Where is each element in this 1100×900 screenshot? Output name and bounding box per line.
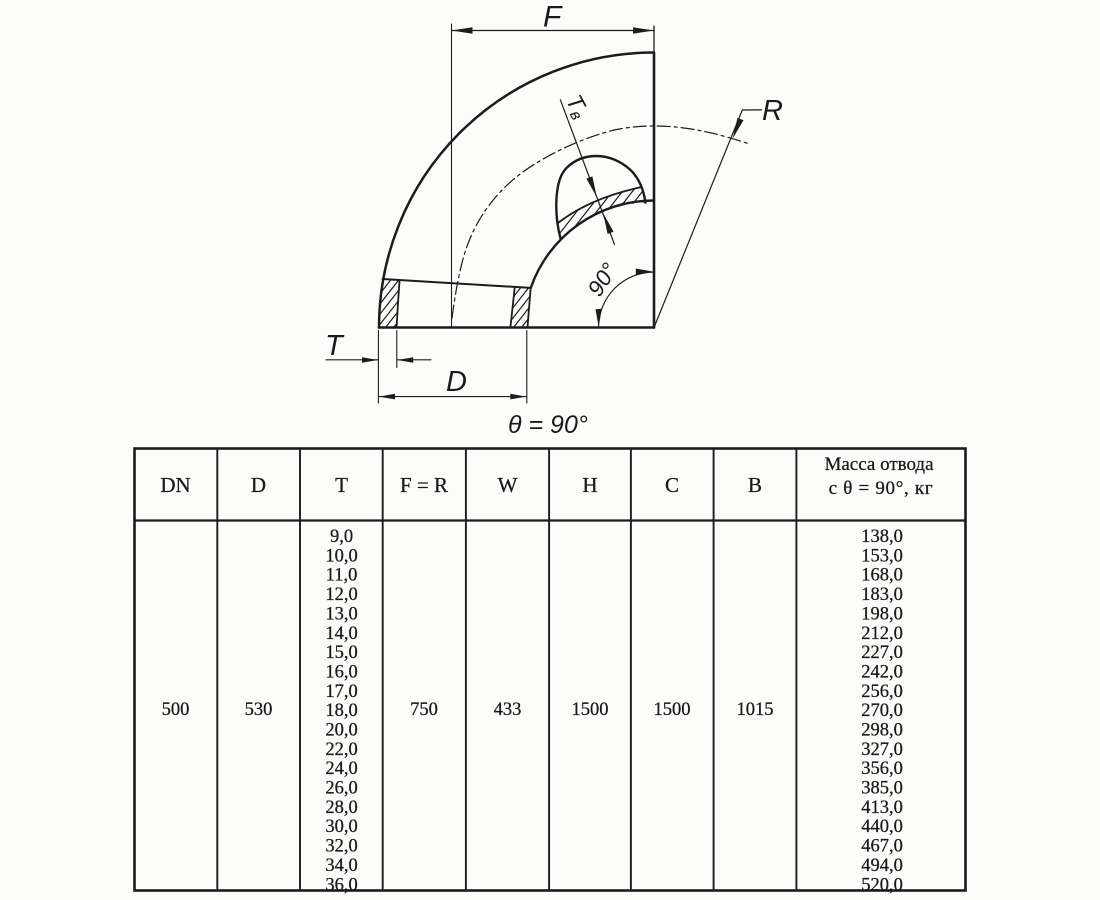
svg-text:198,0: 198,0 bbox=[861, 604, 903, 624]
svg-text:с θ = 90°, кг: с θ = 90°, кг bbox=[829, 478, 934, 499]
svg-text:C: C bbox=[665, 473, 679, 497]
svg-text:1015: 1015 bbox=[737, 700, 774, 720]
svg-text:90°: 90° bbox=[583, 259, 623, 301]
svg-text:11,0: 11,0 bbox=[326, 566, 358, 586]
svg-text:356,0: 356,0 bbox=[861, 759, 903, 779]
svg-text:183,0: 183,0 bbox=[861, 585, 903, 605]
svg-text:242,0: 242,0 bbox=[861, 663, 903, 683]
svg-text:Tв: Tв bbox=[559, 90, 594, 123]
svg-text:385,0: 385,0 bbox=[861, 779, 903, 799]
svg-text:212,0: 212,0 bbox=[861, 624, 903, 644]
svg-text:15,0: 15,0 bbox=[325, 643, 357, 663]
svg-text:13,0: 13,0 bbox=[325, 604, 357, 624]
svg-text:1500: 1500 bbox=[572, 700, 609, 720]
svg-text:168,0: 168,0 bbox=[861, 566, 903, 586]
svg-text:12,0: 12,0 bbox=[325, 585, 357, 605]
svg-text:T: T bbox=[335, 473, 348, 497]
svg-text:327,0: 327,0 bbox=[861, 740, 903, 760]
svg-text:153,0: 153,0 bbox=[861, 546, 903, 566]
svg-text:270,0: 270,0 bbox=[861, 701, 903, 721]
svg-text:227,0: 227,0 bbox=[861, 643, 903, 663]
svg-text:W: W bbox=[498, 473, 518, 497]
svg-text:Масса отвода: Масса отвода bbox=[824, 454, 934, 475]
svg-text:530: 530 bbox=[245, 700, 273, 720]
svg-text:θ = 90°: θ = 90° bbox=[508, 411, 588, 439]
svg-text:H: H bbox=[582, 473, 597, 497]
svg-text:16,0: 16,0 bbox=[325, 663, 357, 683]
svg-text:24,0: 24,0 bbox=[325, 759, 357, 779]
svg-text:B: B bbox=[748, 473, 762, 497]
svg-text:413,0: 413,0 bbox=[861, 798, 903, 818]
svg-text:30,0: 30,0 bbox=[325, 817, 357, 837]
svg-text:138,0: 138,0 bbox=[861, 527, 903, 547]
svg-text:18,0: 18,0 bbox=[325, 701, 357, 721]
svg-text:D: D bbox=[251, 473, 266, 497]
svg-text:9,0: 9,0 bbox=[330, 527, 353, 547]
svg-text:34,0: 34,0 bbox=[325, 856, 357, 876]
svg-text:500: 500 bbox=[162, 700, 190, 720]
svg-text:256,0: 256,0 bbox=[861, 682, 903, 702]
svg-text:494,0: 494,0 bbox=[861, 856, 903, 876]
svg-text:D: D bbox=[446, 366, 467, 398]
svg-text:F = R: F = R bbox=[400, 473, 448, 497]
svg-text:17,0: 17,0 bbox=[325, 682, 357, 702]
svg-text:520,0: 520,0 bbox=[861, 875, 903, 895]
svg-text:440,0: 440,0 bbox=[861, 817, 903, 837]
svg-text:36,0: 36,0 bbox=[325, 875, 357, 895]
svg-text:26,0: 26,0 bbox=[325, 779, 357, 799]
svg-text:F: F bbox=[543, 1, 563, 34]
svg-text:10,0: 10,0 bbox=[325, 546, 357, 566]
svg-text:14,0: 14,0 bbox=[325, 624, 357, 644]
svg-text:22,0: 22,0 bbox=[325, 740, 357, 760]
svg-text:28,0: 28,0 bbox=[325, 798, 357, 818]
svg-text:298,0: 298,0 bbox=[861, 721, 903, 741]
svg-text:467,0: 467,0 bbox=[861, 837, 903, 857]
svg-text:T: T bbox=[325, 330, 345, 362]
svg-text:DN: DN bbox=[160, 473, 190, 497]
svg-text:1500: 1500 bbox=[654, 700, 691, 720]
svg-text:433: 433 bbox=[494, 700, 522, 720]
svg-text:20,0: 20,0 bbox=[325, 721, 357, 741]
svg-text:R: R bbox=[762, 95, 783, 127]
svg-text:32,0: 32,0 bbox=[325, 837, 357, 857]
svg-text:750: 750 bbox=[410, 700, 438, 720]
